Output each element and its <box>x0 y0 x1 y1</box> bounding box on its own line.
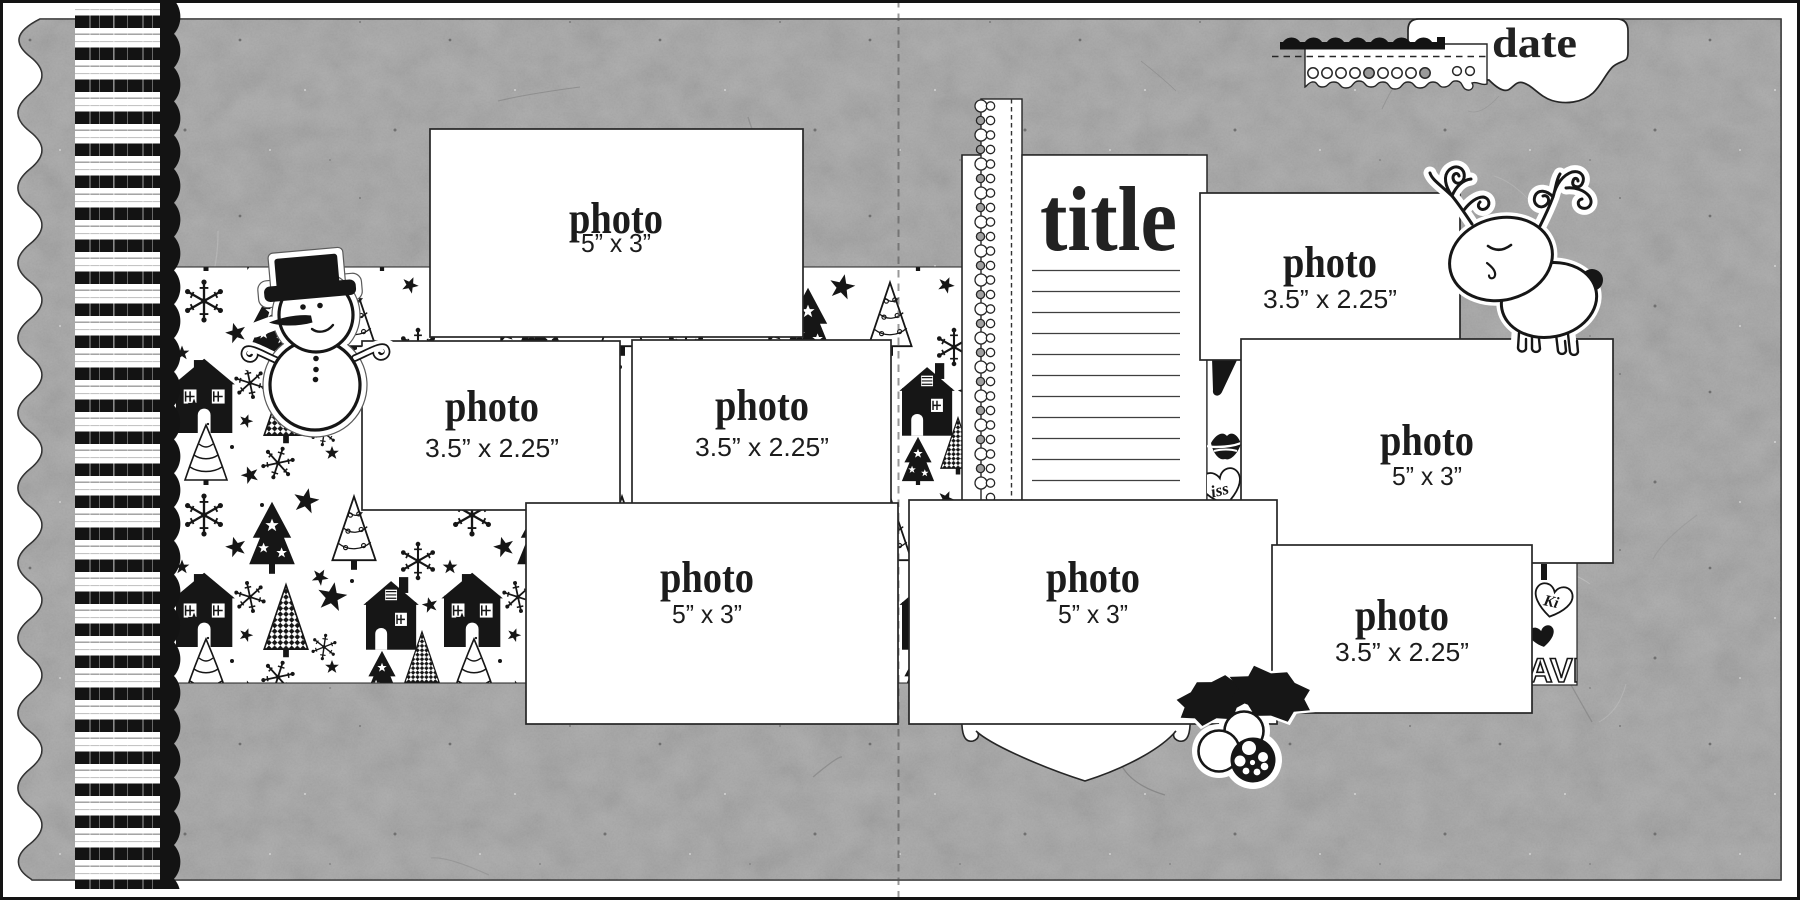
svg-text:5” x 3”: 5” x 3” <box>1058 599 1128 629</box>
svg-text:photo: photo <box>445 382 539 431</box>
svg-text:5” x 3”: 5” x 3” <box>581 228 651 258</box>
svg-text:title: title <box>1040 168 1177 270</box>
svg-text:5” x 3”: 5” x 3” <box>672 599 742 629</box>
svg-text:date: date <box>1492 21 1577 67</box>
svg-text:photo: photo <box>1355 591 1449 640</box>
svg-text:photo: photo <box>715 381 809 430</box>
svg-text:3.5” x 2.25”: 3.5” x 2.25” <box>695 432 829 462</box>
svg-text:3.5” x 2.25”: 3.5” x 2.25” <box>425 433 559 463</box>
svg-text:3.5” x 2.25”: 3.5” x 2.25” <box>1263 284 1397 314</box>
svg-text:photo: photo <box>1283 238 1377 287</box>
svg-text:photo: photo <box>1380 416 1474 465</box>
svg-text:photo: photo <box>1046 553 1140 602</box>
svg-text:photo: photo <box>660 553 754 602</box>
svg-text:5” x 3”: 5” x 3” <box>1392 461 1462 491</box>
svg-text:3.5” x 2.25”: 3.5” x 2.25” <box>1335 637 1469 667</box>
